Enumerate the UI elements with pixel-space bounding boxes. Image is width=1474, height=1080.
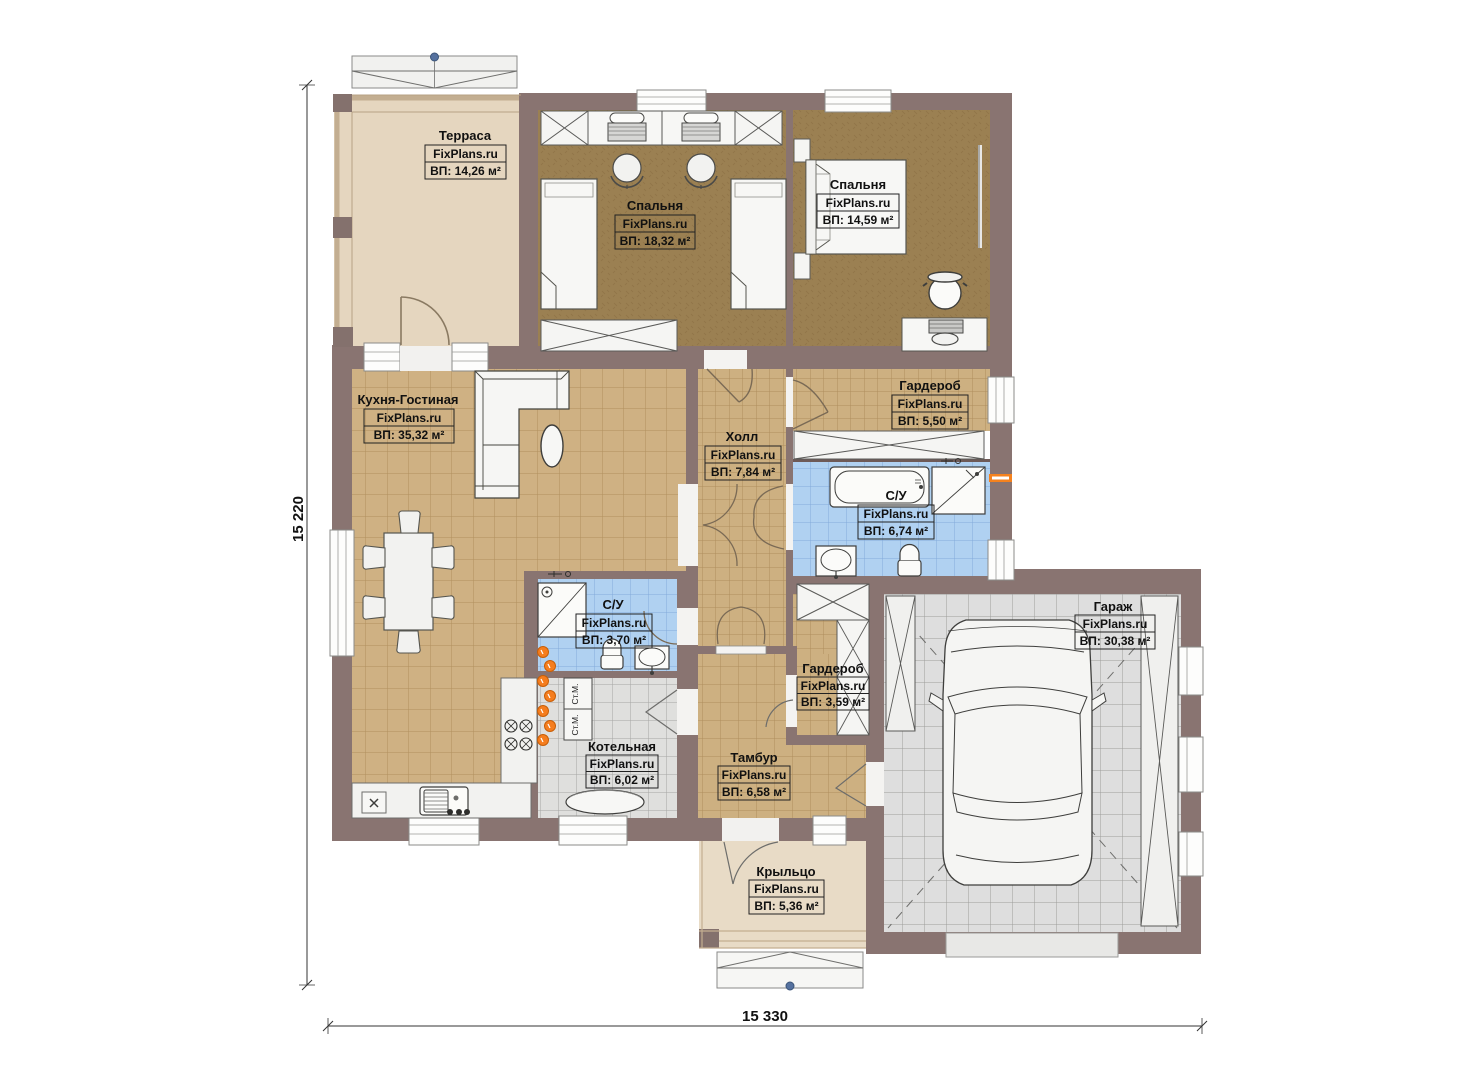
svg-text:FixPlans.ru: FixPlans.ru [433, 147, 498, 161]
svg-text:С/У: С/У [602, 597, 624, 612]
svg-text:ВП: 5,36 м²: ВП: 5,36 м² [754, 899, 818, 913]
svg-text:FixPlans.ru: FixPlans.ru [582, 616, 647, 630]
svg-text:FixPlans.ru: FixPlans.ru [623, 217, 688, 231]
svg-text:FixPlans.ru: FixPlans.ru [864, 507, 929, 521]
svg-text:ВП: 30,38 м²: ВП: 30,38 м² [1080, 634, 1151, 648]
svg-text:Крыльцо: Крыльцо [756, 864, 815, 879]
svg-text:FixPlans.ru: FixPlans.ru [1083, 617, 1148, 631]
svg-text:FixPlans.ru: FixPlans.ru [590, 757, 655, 771]
svg-text:Спальня: Спальня [627, 198, 683, 213]
svg-text:ВП: 18,32 м²: ВП: 18,32 м² [620, 234, 691, 248]
svg-text:Гардероб: Гардероб [899, 378, 960, 393]
svg-text:ВП: 3,70 м²: ВП: 3,70 м² [582, 633, 646, 647]
svg-text:15 330: 15 330 [742, 1008, 788, 1025]
svg-text:ВП: 6,02 м²: ВП: 6,02 м² [590, 773, 654, 787]
svg-text:ВП: 6,74 м²: ВП: 6,74 м² [864, 524, 928, 538]
svg-text:ВП: 5,50 м²: ВП: 5,50 м² [898, 414, 962, 428]
svg-text:Котельная: Котельная [588, 739, 656, 754]
svg-text:Ст.М.: Ст.М. [570, 684, 580, 705]
svg-text:15 220: 15 220 [290, 496, 307, 542]
svg-text:ВП: 35,32 м²: ВП: 35,32 м² [374, 428, 445, 442]
svg-text:FixPlans.ru: FixPlans.ru [826, 196, 891, 210]
svg-text:Спальня: Спальня [830, 177, 886, 192]
svg-text:FixPlans.ru: FixPlans.ru [754, 882, 819, 896]
svg-text:ВП: 14,26 м²: ВП: 14,26 м² [430, 164, 501, 178]
svg-text:Терраса: Терраса [439, 128, 492, 143]
svg-text:Кухня-Гостиная: Кухня-Гостиная [357, 392, 458, 407]
svg-text:Холл: Холл [726, 429, 759, 444]
svg-text:Тамбур: Тамбур [730, 750, 777, 765]
svg-text:С/У: С/У [885, 488, 907, 503]
svg-text:FixPlans.ru: FixPlans.ru [711, 448, 776, 462]
svg-text:ВП: 14,59 м²: ВП: 14,59 м² [823, 213, 894, 227]
svg-text:FixPlans.ru: FixPlans.ru [801, 679, 866, 693]
svg-text:Гардероб: Гардероб [802, 661, 863, 676]
svg-text:ВП: 3,59 м²: ВП: 3,59 м² [801, 695, 865, 709]
svg-text:FixPlans.ru: FixPlans.ru [377, 411, 442, 425]
svg-text:Ст.М.: Ст.М. [570, 715, 580, 736]
svg-text:FixPlans.ru: FixPlans.ru [722, 768, 787, 782]
svg-text:FixPlans.ru: FixPlans.ru [898, 397, 963, 411]
svg-text:ВП: 6,58 м²: ВП: 6,58 м² [722, 785, 786, 799]
svg-text:Гараж: Гараж [1094, 599, 1134, 614]
svg-text:ВП: 7,84 м²: ВП: 7,84 м² [711, 465, 775, 479]
